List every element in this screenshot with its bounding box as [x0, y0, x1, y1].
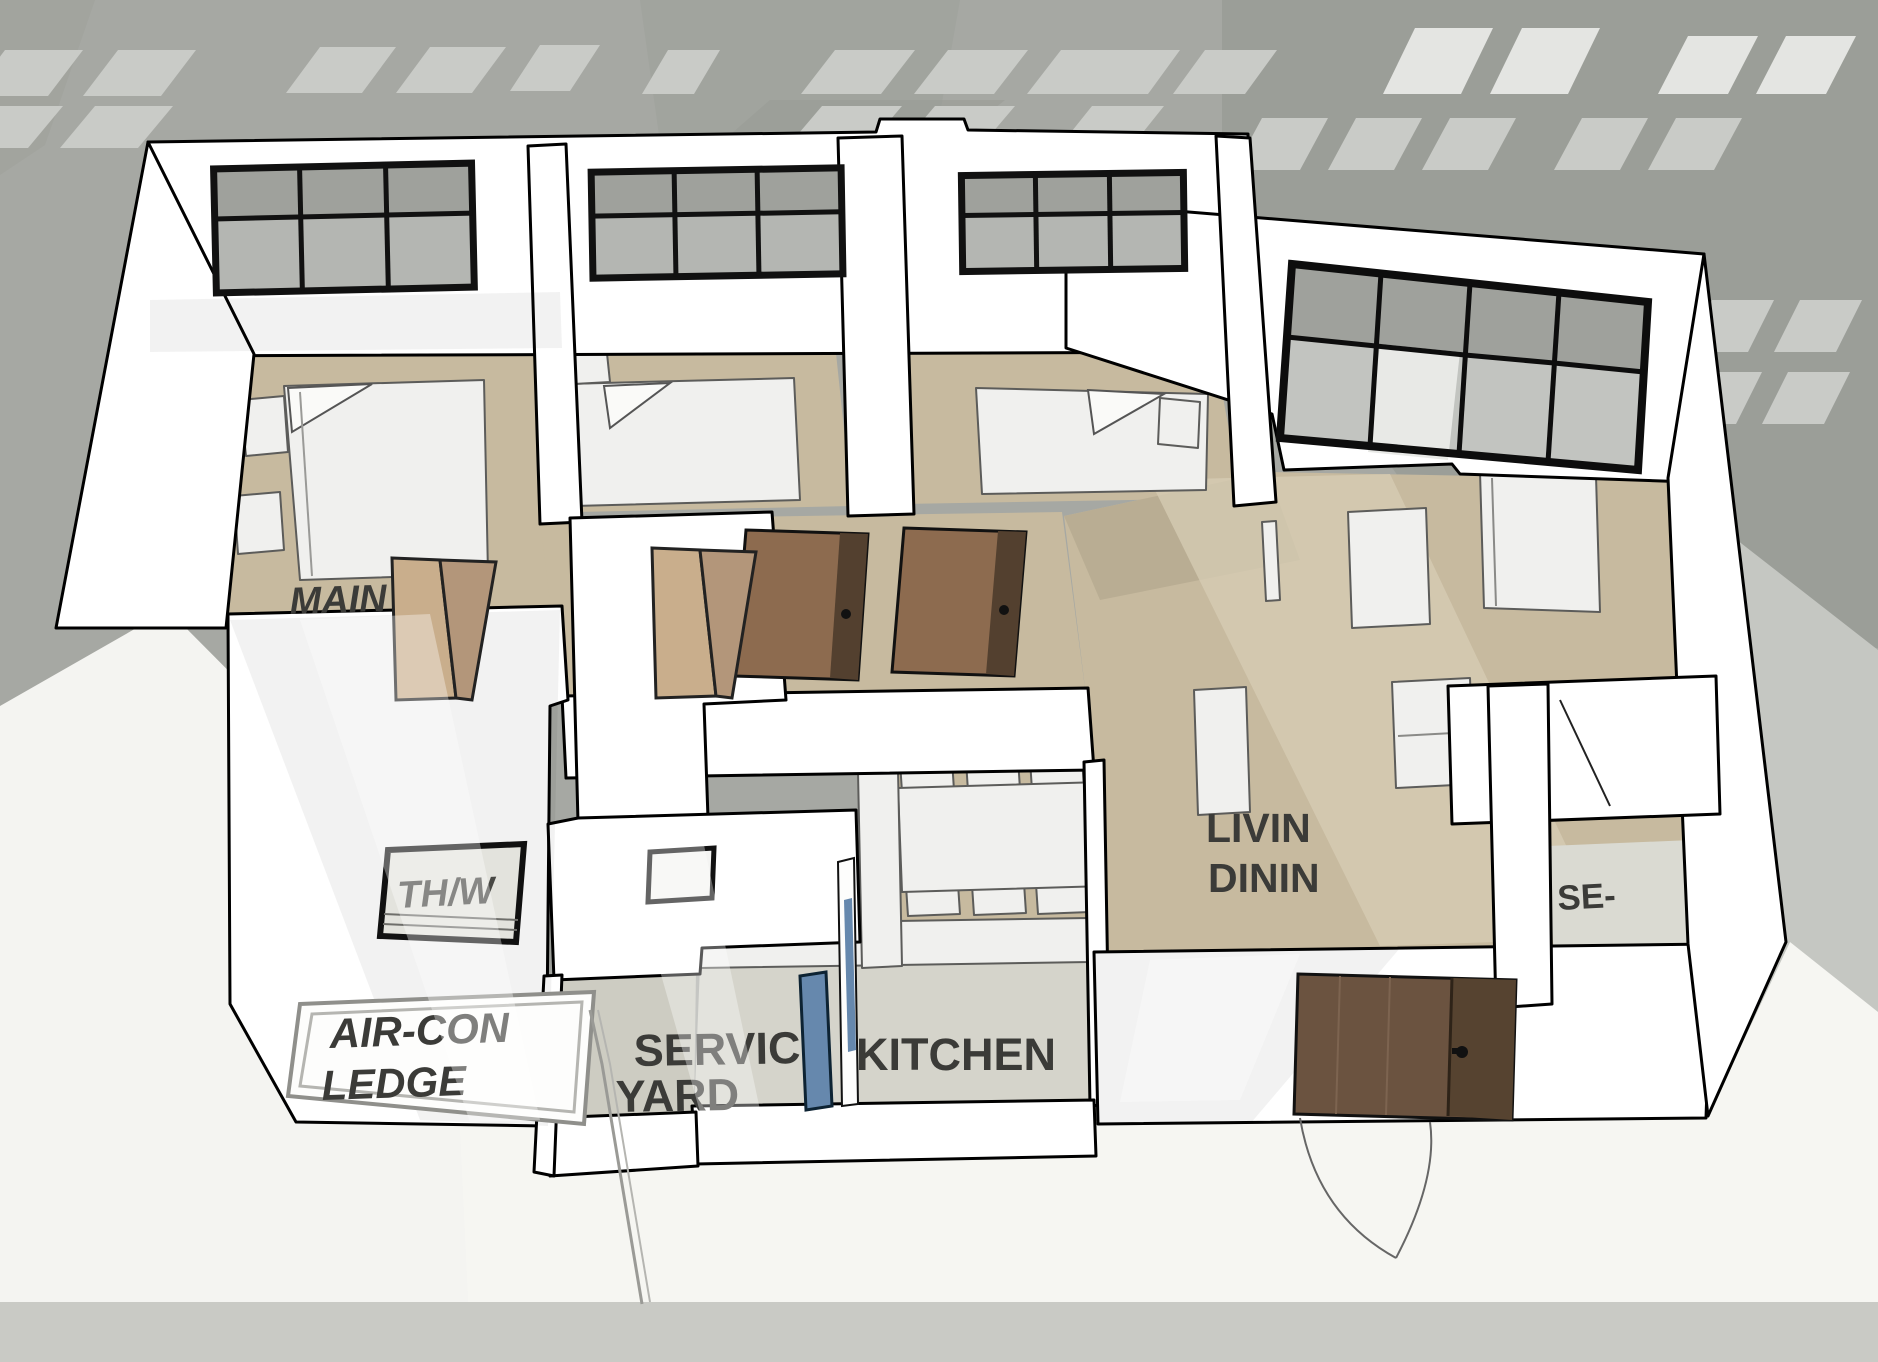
main-bedroom-window	[214, 163, 475, 293]
coffee-table	[1348, 508, 1430, 628]
bedroom3-bed	[976, 388, 1208, 494]
floorplan-canvas: TH/W AIR-CON LEDGE	[0, 0, 1878, 1362]
living-bay-window	[1280, 264, 1648, 470]
bedroom-door-2	[892, 528, 1026, 676]
ground-bottom-strip	[0, 1302, 1878, 1362]
kitchen-label: KITCHEN	[856, 1029, 1056, 1080]
aircon-ledge-label-2: LEDGE	[321, 1057, 469, 1109]
living-dining-label-2: DININ	[1208, 855, 1320, 901]
floorplan-render: TH/W AIR-CON LEDGE	[0, 0, 1878, 1362]
cabinet-strip	[1262, 521, 1280, 601]
living-dining-label-1: LIVIN	[1206, 805, 1311, 851]
wall-shading-3	[150, 292, 562, 352]
kitchen-peninsula	[858, 770, 902, 968]
shelter-left-wall	[1488, 684, 1552, 1008]
shelter-label: SE-	[1556, 876, 1616, 918]
bay-window-cabinet	[1480, 472, 1600, 612]
main-bedroom-label: MAIN	[289, 578, 389, 623]
party-wall-2	[838, 136, 914, 516]
bedroom3-window	[961, 172, 1184, 271]
shoe-cabinet	[1194, 687, 1250, 815]
bedroom2-window	[591, 168, 843, 278]
dining-table	[898, 758, 1106, 916]
